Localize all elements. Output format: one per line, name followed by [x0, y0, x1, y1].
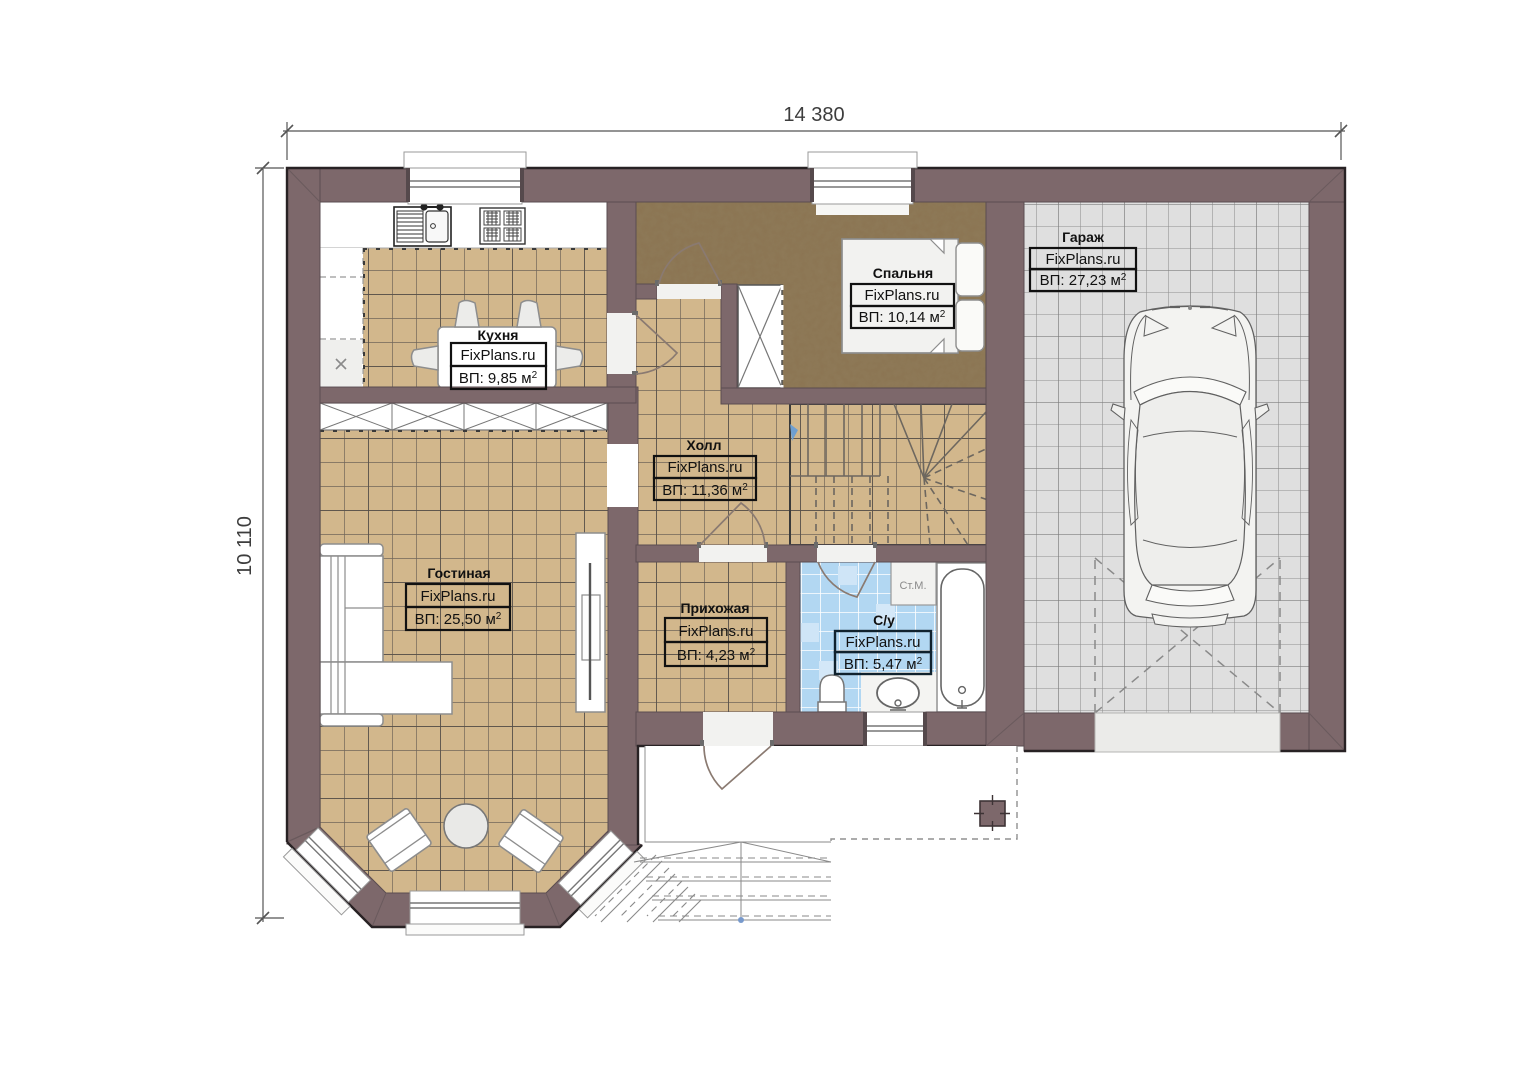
svg-text:FixPlans.ru: FixPlans.ru [420, 588, 495, 605]
svg-text:14 380: 14 380 [783, 104, 844, 126]
svg-text:10 110: 10 110 [234, 516, 256, 576]
svg-text:FixPlans.ru: FixPlans.ru [460, 347, 535, 364]
svg-text:Холл: Холл [686, 437, 721, 453]
svg-text:FixPlans.ru: FixPlans.ru [667, 459, 742, 476]
svg-text:С/у: С/у [873, 612, 895, 628]
svg-text:ВП: 4,23 м2: ВП: 4,23 м2 [677, 647, 756, 664]
svg-text:FixPlans.ru: FixPlans.ru [1045, 251, 1120, 268]
svg-text:ВП: 10,14 м2: ВП: 10,14 м2 [859, 309, 946, 326]
svg-text:ВП: 11,36 м2: ВП: 11,36 м2 [662, 482, 748, 499]
svg-text:Прихожая: Прихожая [680, 600, 749, 616]
svg-text:FixPlans.ru: FixPlans.ru [678, 623, 753, 640]
svg-text:Гараж: Гараж [1062, 229, 1105, 245]
svg-text:FixPlans.ru: FixPlans.ru [864, 287, 939, 304]
svg-text:ВП: 27,23 м2: ВП: 27,23 м2 [1040, 272, 1127, 289]
svg-text:Гостиная: Гостиная [427, 565, 490, 581]
svg-text:Спальня: Спальня [873, 265, 933, 281]
svg-text:FixPlans.ru: FixPlans.ru [845, 634, 920, 651]
svg-text:ВП: 9,85 м2: ВП: 9,85 м2 [459, 370, 538, 387]
svg-text:Ст.М.: Ст.М. [899, 580, 926, 592]
svg-text:Кухня: Кухня [478, 327, 519, 343]
svg-text:ВП: 25,50 м2: ВП: 25,50 м2 [415, 611, 502, 628]
svg-text:ВП: 5,47 м2: ВП: 5,47 м2 [844, 656, 923, 673]
